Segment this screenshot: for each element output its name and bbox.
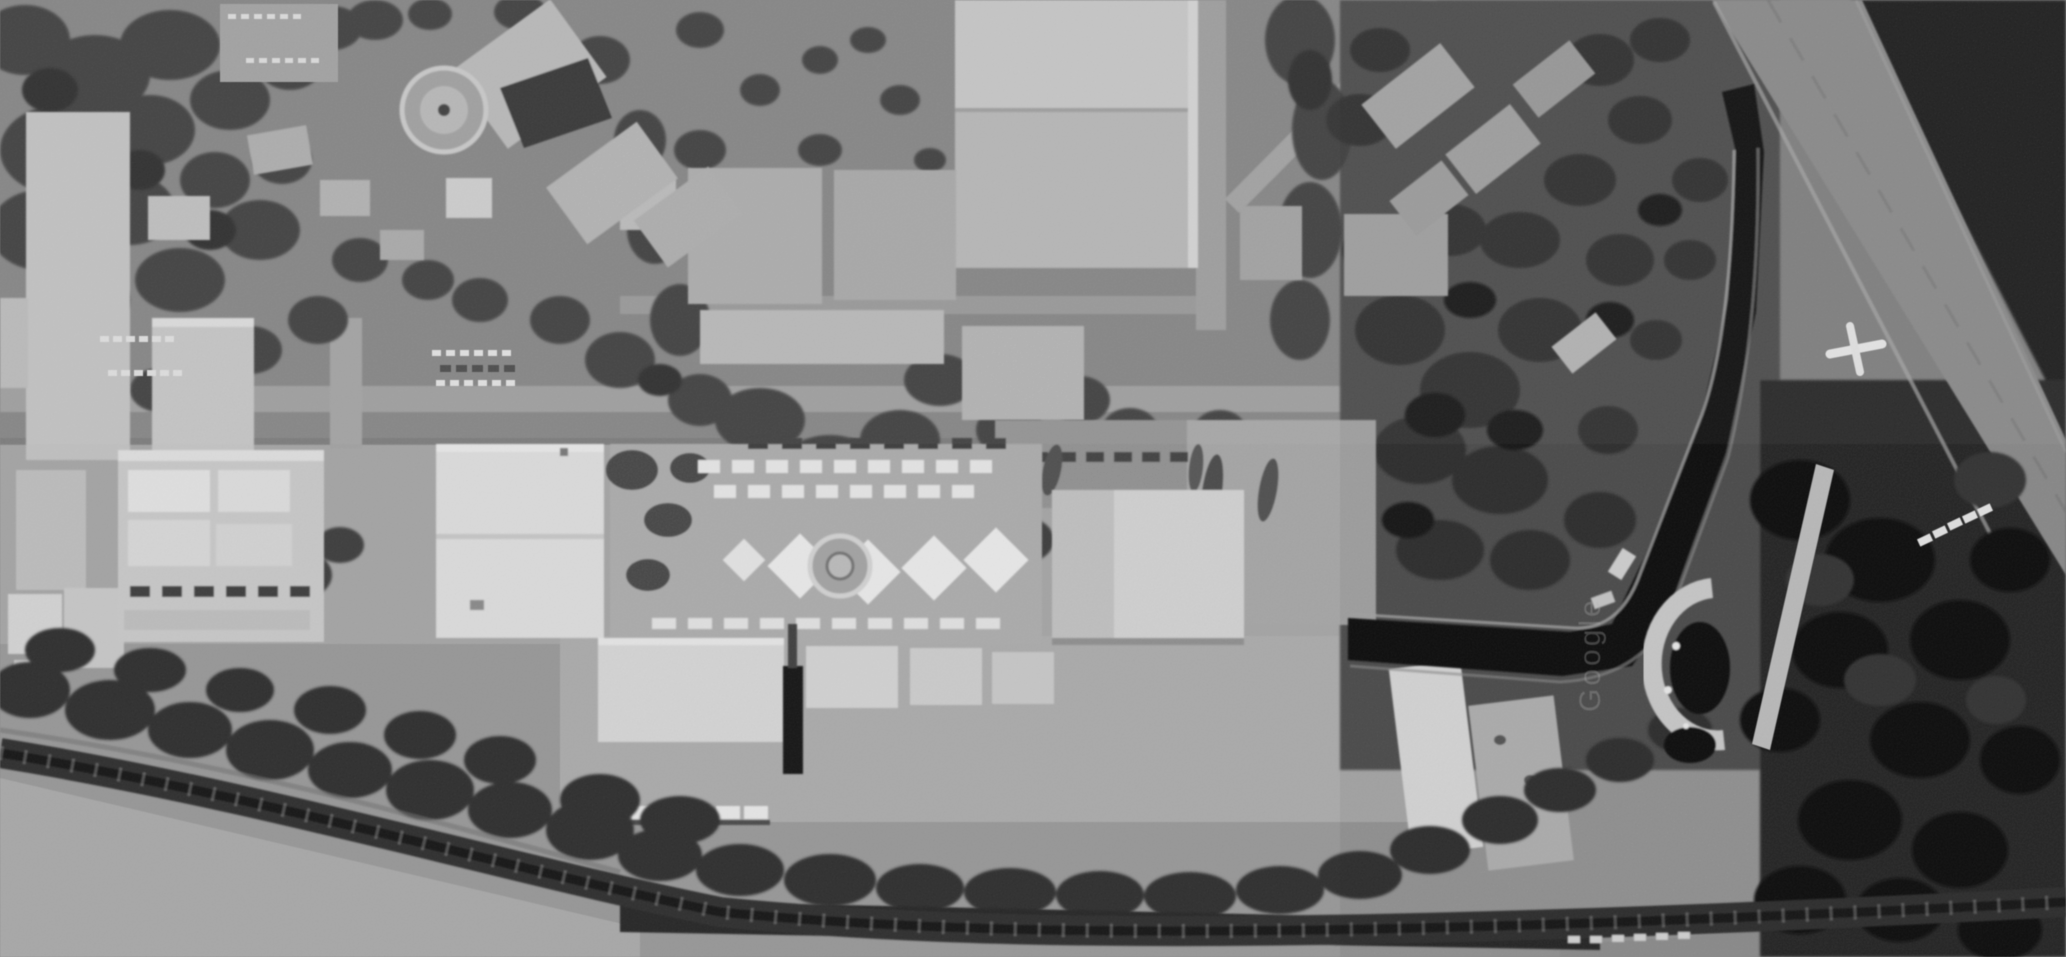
aerial-photo-stage: Google bbox=[0, 0, 2066, 957]
aerial-satellite-photo: Google bbox=[0, 0, 2066, 957]
film-grain-overlay bbox=[0, 0, 2066, 957]
